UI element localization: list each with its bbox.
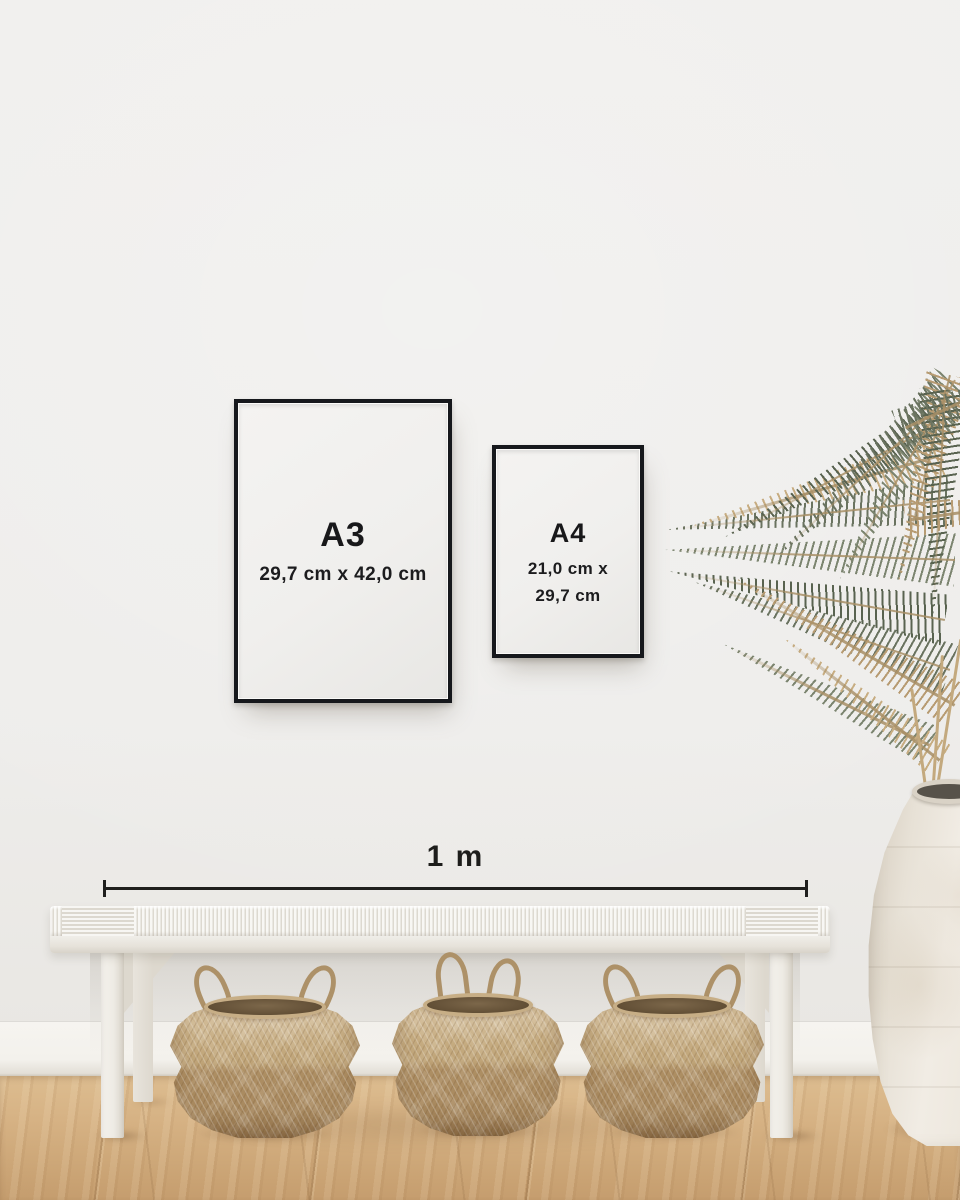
seagrass-basket xyxy=(580,1005,764,1138)
a4-poster-paper: A4 21,0 cm x29,7 cm xyxy=(496,449,640,654)
a4-dimensions-line1: 21,0 cm x xyxy=(528,559,608,578)
scale-bar-line xyxy=(103,887,808,890)
a3-poster-paper: A3 29,7 cm x 42,0 cm xyxy=(238,403,448,699)
basket-rim xyxy=(613,994,731,1018)
a3-dimensions-text: 29,7 cm x 42,0 cm xyxy=(259,564,426,586)
a4-size-label: A4 xyxy=(550,518,587,549)
basket-body xyxy=(392,1004,564,1136)
bench-leg xyxy=(770,950,793,1138)
basket-rim xyxy=(423,993,533,1017)
bench-seat xyxy=(50,906,830,953)
bench-seat-woven-top xyxy=(50,906,830,936)
scale-bar: 1 m xyxy=(103,840,808,900)
bench-leg xyxy=(133,951,153,1102)
a3-poster-frame: A3 29,7 cm x 42,0 cm xyxy=(234,399,452,703)
a4-dimensions-line2: 29,7 cm xyxy=(535,586,600,605)
a4-poster-frame: A4 21,0 cm x29,7 cm xyxy=(492,445,644,658)
basket-rim xyxy=(204,995,326,1019)
bench-seat-front-rail xyxy=(50,936,830,953)
scale-bar-label: 1 m xyxy=(103,840,808,874)
poster-size-guide-scene: A3 29,7 cm x 42,0 cm A4 21,0 cm x29,7 cm… xyxy=(0,0,960,1200)
bench-leg xyxy=(101,950,124,1138)
a3-size-label: A3 xyxy=(320,516,365,555)
a4-dimensions-text: 21,0 cm x29,7 cm xyxy=(528,556,608,609)
basket-body xyxy=(170,1006,360,1138)
seagrass-basket xyxy=(392,1004,564,1136)
basket-body xyxy=(580,1005,764,1138)
seagrass-basket xyxy=(170,1006,360,1138)
